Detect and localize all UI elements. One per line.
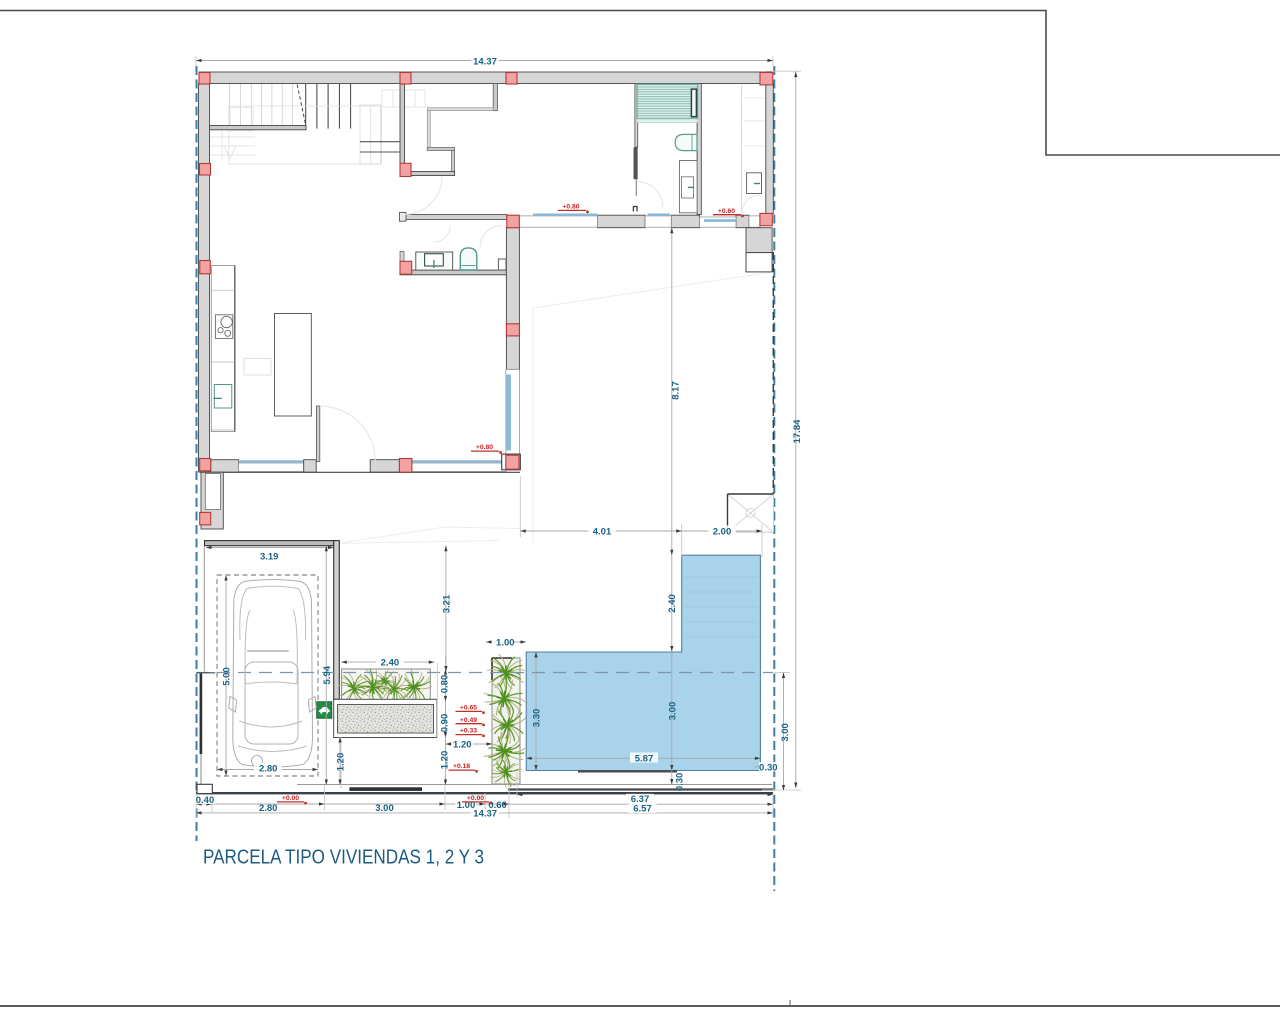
svg-text:+0.33: +0.33 [460,728,477,735]
svg-text:4.01: 4.01 [593,527,612,538]
svg-text:3.30: 3.30 [532,709,543,728]
svg-text:+0.00: +0.00 [282,795,299,802]
svg-text:17.84: 17.84 [792,419,803,443]
svg-text:0.30: 0.30 [759,762,778,773]
svg-text:+0.00: +0.00 [467,795,484,802]
svg-text:5.94: 5.94 [322,665,333,684]
svg-text:3.00: 3.00 [780,723,791,742]
svg-text:1.20: 1.20 [440,751,451,770]
svg-text:+0.65: +0.65 [460,705,477,712]
svg-text:0.30: 0.30 [675,773,686,792]
svg-text:8.17: 8.17 [671,381,682,400]
svg-text:3.00: 3.00 [375,803,394,814]
svg-text:3.21: 3.21 [442,594,453,613]
svg-text:2.00: 2.00 [713,527,732,538]
svg-text:14.37: 14.37 [473,809,497,820]
svg-text:2.40: 2.40 [667,594,678,613]
svg-text:5.87: 5.87 [635,753,654,764]
svg-text:14.37: 14.37 [473,56,497,67]
svg-text:2.40: 2.40 [381,658,400,669]
svg-text:+0.18: +0.18 [453,763,470,770]
svg-text:+0.60: +0.60 [718,208,735,215]
svg-text:+0.80: +0.80 [562,204,579,211]
svg-text:0.90: 0.90 [440,714,451,733]
svg-text:3.19: 3.19 [260,552,279,563]
svg-text:+0.49: +0.49 [460,717,477,724]
svg-text:1.20: 1.20 [453,739,472,750]
svg-text:+0.80: +0.80 [476,444,493,451]
svg-text:2.80: 2.80 [259,803,278,814]
svg-text:6.57: 6.57 [633,804,652,815]
svg-text:0.40: 0.40 [196,795,215,806]
svg-text:PARCELA TIPO VIVIENDAS 1, 2 Y: PARCELA TIPO VIVIENDAS 1, 2 Y 3 [203,846,484,869]
svg-text:3.00: 3.00 [668,702,679,721]
svg-text:5.00: 5.00 [221,667,232,686]
svg-text:1.00: 1.00 [496,638,515,649]
svg-text:2.80: 2.80 [259,764,278,775]
svg-text:0.80: 0.80 [440,675,451,694]
svg-text:1.20: 1.20 [336,753,347,772]
